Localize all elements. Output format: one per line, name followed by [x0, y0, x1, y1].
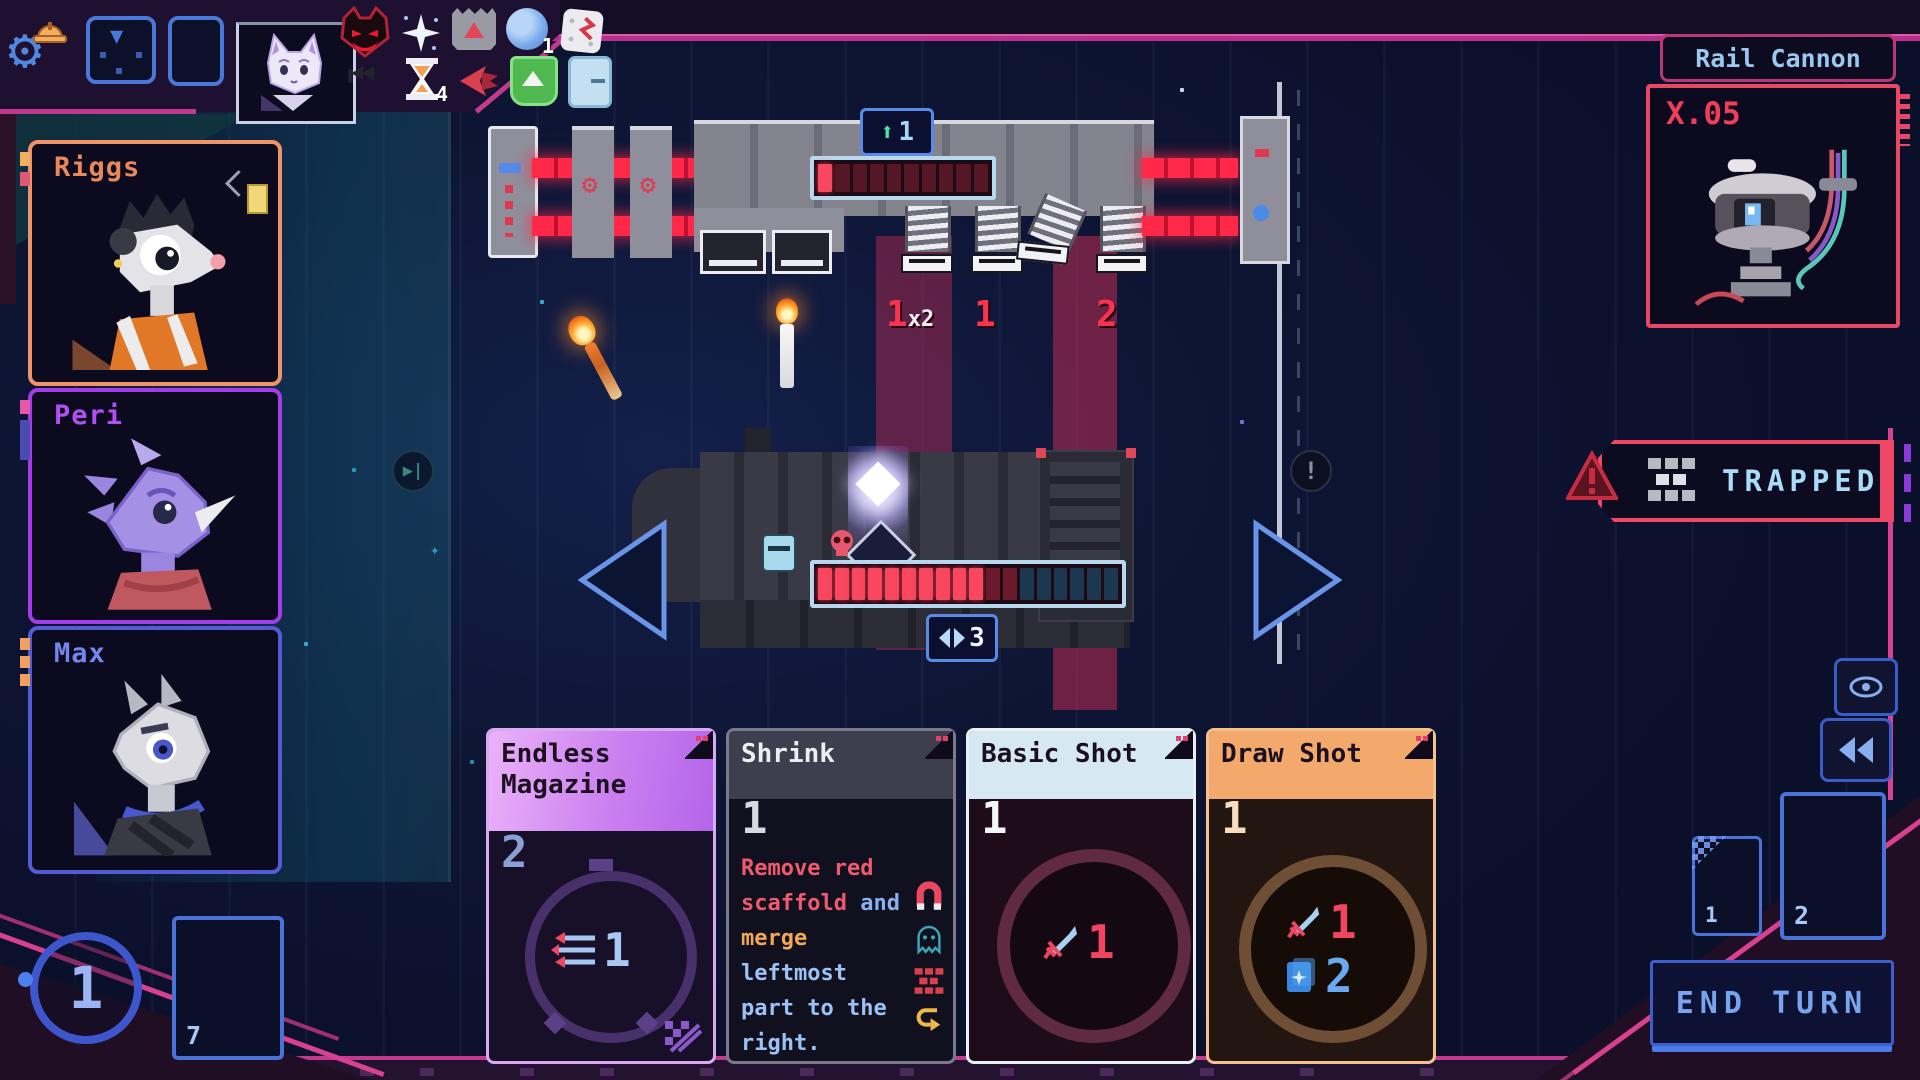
enemy-hp-segment	[956, 164, 970, 192]
trapped-label: TRAPPED	[1722, 464, 1879, 498]
trapped-status-banner: TRAPPED	[1598, 440, 1894, 522]
undo-rewind-button[interactable]	[1820, 718, 1892, 782]
player-hp-segment	[1087, 568, 1101, 600]
player-health-bar	[810, 560, 1126, 608]
player-hp-segment	[986, 568, 1000, 600]
star	[352, 468, 356, 472]
hourglass-status-value: 4	[436, 82, 448, 106]
inspect-title-text: Rail Cannon	[1695, 44, 1861, 73]
sword-icon	[1285, 903, 1323, 941]
shuffle-button[interactable]: ▼	[86, 16, 156, 84]
player-hp-segment	[852, 568, 866, 600]
enemy-vent	[700, 230, 766, 274]
panel-tab	[20, 420, 30, 460]
exhaust-pile-count: 1	[1705, 903, 1718, 927]
scaffold-grid-red-icon	[913, 965, 945, 997]
enemy-hp-segment	[887, 164, 901, 192]
player-hp-segment	[1070, 568, 1084, 600]
queued-card-badge	[247, 184, 268, 214]
end-turn-button[interactable]: END TURN	[1650, 960, 1894, 1046]
game-screen: ✦ ⚙ ⚙ ⬆ 1 1x2 1 2	[0, 0, 1920, 1080]
settings-button[interactable]: ⚙	[8, 16, 72, 82]
player-hp-segment	[902, 568, 916, 600]
card-draw-shot[interactable]: Draw Shot 1 1 2	[1206, 728, 1436, 1064]
preview-eye-button[interactable]	[1834, 658, 1898, 716]
enemy-intent: 1	[974, 294, 996, 335]
magnet-icon	[913, 881, 945, 913]
scaffold-grid-icon	[1648, 458, 1702, 504]
player-hp-segment	[969, 568, 983, 600]
part-corner-mark	[1126, 448, 1136, 458]
player-hp-segment	[835, 568, 849, 600]
player-hp-segment	[868, 568, 882, 600]
card-cost: 1	[741, 797, 768, 841]
star	[304, 642, 308, 646]
enemy-hp-segment	[974, 164, 988, 192]
enemy-hp-segment	[939, 164, 953, 192]
hourglass-status-icon: 4	[400, 56, 446, 102]
ring-notch	[589, 859, 613, 871]
card-cost: 1	[1221, 797, 1248, 841]
enemy-hp-segment	[853, 164, 867, 192]
skip-marker-icon: ▶|	[392, 450, 434, 492]
card-attack: 1	[1285, 895, 1357, 949]
ship-status-icon	[456, 58, 502, 104]
moon-status-icon: 1	[506, 8, 552, 54]
dot	[116, 68, 122, 74]
max-avatar	[74, 670, 242, 856]
card-attack-value: 1	[1087, 915, 1115, 969]
move-right-arrow-button[interactable]	[1248, 518, 1348, 642]
card-attack: 1	[1041, 915, 1115, 969]
crew-name: Max	[54, 638, 106, 669]
disabled-prev-icon: ⏮	[348, 58, 375, 93]
die-status-icon	[562, 10, 608, 56]
card-title: Endless Magazine	[489, 731, 713, 831]
star	[1180, 88, 1184, 92]
enemy-boost-badge: ⬆ 1	[860, 108, 934, 156]
player-hp-segment	[1003, 568, 1017, 600]
player-evade-value: 3	[969, 623, 985, 653]
panel-comb-trim	[1900, 94, 1910, 146]
panel-tab	[20, 674, 30, 686]
card-corner-fold	[685, 731, 713, 759]
enemy-cap-blue-light	[1253, 205, 1269, 221]
frame-dash	[1904, 444, 1911, 462]
sparkle-star: ✦	[430, 540, 440, 559]
enemy-vent	[772, 230, 832, 274]
frame-trim	[0, 109, 196, 114]
enemy-hp-segment	[818, 164, 832, 192]
panel-tab	[20, 172, 30, 186]
inspect-title: Rail Cannon	[1660, 34, 1896, 82]
player-hp-segment	[818, 568, 832, 600]
draw-arrows-icon	[551, 930, 597, 970]
move-left-arrow-button[interactable]	[572, 518, 672, 642]
crew-name: Riggs	[54, 152, 140, 183]
enemy-boost-value: 1	[898, 117, 914, 147]
panel-tab	[20, 152, 30, 166]
enemy-hp-segment	[922, 164, 936, 192]
card-cost: 1	[981, 797, 1008, 841]
star	[540, 300, 544, 304]
enemy-cannon-spring	[1100, 206, 1148, 273]
left-right-arrows-icon	[939, 628, 965, 648]
enemy-ship-right-cap	[1240, 116, 1290, 264]
energy-value: 1	[69, 954, 104, 1022]
end-turn-label: END TURN	[1676, 986, 1869, 1021]
skull-icon	[826, 528, 858, 562]
card-attack-value: 1	[1329, 895, 1357, 949]
enemy-cap-red-mark	[1255, 149, 1269, 157]
inspect-portrait-panel: X.05	[1646, 84, 1900, 328]
shield-boost-status-icon	[510, 56, 556, 102]
enemy-intent: 1x2	[886, 294, 934, 335]
energy-counter: 1	[30, 932, 142, 1044]
exhaust-pile[interactable]: 1	[1692, 836, 1762, 936]
deck-view-button[interactable]	[168, 16, 224, 86]
card-basic-shot[interactable]: Basic Shot 1 1	[966, 728, 1196, 1064]
draw-pile[interactable]: 7	[172, 916, 284, 1060]
enemy-laser-right-top	[1142, 158, 1238, 178]
player-hp-segment	[936, 568, 950, 600]
card-endless-magazine[interactable]: Endless Magazine 2 1	[486, 728, 716, 1064]
door-status-icon	[568, 56, 614, 102]
star	[470, 760, 474, 764]
player-hp-segment	[953, 568, 967, 600]
enemy-hp-segment	[870, 164, 884, 192]
warning-triangle-icon	[1566, 450, 1618, 502]
dot	[100, 52, 106, 58]
moon-status-value: 1	[542, 34, 554, 58]
devil-status-icon	[336, 4, 394, 62]
enemy-cannon-spring	[975, 206, 1023, 273]
crew-name: Peri	[54, 400, 123, 431]
discard-pile[interactable]: 2	[1780, 792, 1886, 940]
card-draw-value: 2	[1325, 949, 1353, 1003]
player-hp-segment	[919, 568, 933, 600]
card-corner-fold	[925, 731, 953, 759]
panel-tab	[20, 400, 30, 414]
riggs-avatar	[72, 184, 242, 370]
panel-tab	[20, 656, 30, 668]
dot	[136, 52, 142, 58]
player-hp-segment	[1054, 568, 1068, 600]
card-value: 1	[603, 923, 631, 977]
enemy-hp-segment	[835, 164, 849, 192]
card-corner-fold	[1165, 731, 1193, 759]
frame-dash	[1904, 474, 1911, 492]
card-cost: 2	[501, 831, 528, 875]
player-hp-segment	[1104, 568, 1118, 600]
enemy-cat-avatar	[239, 25, 347, 115]
infinite-use-icon	[665, 1021, 703, 1053]
player-hp-segment	[1020, 568, 1034, 600]
panel-tab	[20, 638, 30, 650]
enemy-ship-left-cap	[488, 126, 538, 258]
card-draw-icon	[1285, 958, 1317, 994]
player-hp-segment	[1037, 568, 1051, 600]
enemy-cap-red-dots	[505, 185, 513, 237]
up-arrow-icon: ⬆	[880, 118, 894, 146]
crew-panel-riggs[interactable]: Riggs	[28, 140, 282, 386]
ghost-icon	[913, 923, 945, 955]
banner-right-bar	[1880, 444, 1890, 518]
rewind-icon	[1839, 737, 1873, 763]
card-description: Remove red scaffold and merge leftmost p…	[741, 851, 909, 1061]
exhaust-checker-icon	[1692, 836, 1726, 870]
player-evade-badge: 3	[926, 614, 998, 662]
card-title: Basic Shot	[969, 731, 1193, 799]
card-art-value: 1	[551, 923, 631, 977]
player-hp-segment	[885, 568, 899, 600]
warning-hat-icon	[30, 14, 70, 44]
down-arrow-icon: ▼	[110, 24, 123, 49]
rail-cannon-robot-avatar	[1680, 134, 1870, 320]
enemy-turbine-icon: ⚙	[640, 170, 662, 204]
frame-dash	[1904, 504, 1911, 522]
card-title: Draw Shot	[1209, 731, 1433, 799]
part-corner-mark	[1036, 448, 1046, 458]
flare-torch	[563, 311, 629, 404]
enemy-health-bar	[810, 156, 996, 200]
card-title: Shrink	[729, 731, 953, 799]
candle-torch	[776, 298, 798, 388]
discard-pile-count: 2	[1794, 901, 1809, 930]
enemy-intent: 2	[1096, 294, 1118, 335]
enemy-hp-segment	[904, 164, 918, 192]
star	[1240, 420, 1244, 424]
sword-icon	[1041, 922, 1081, 962]
sparkle-status-icon	[398, 10, 444, 56]
card-corner-fold	[1405, 731, 1433, 759]
card-keyword-icons	[911, 881, 947, 1039]
inspect-multiplier: X.05	[1666, 96, 1741, 132]
enemy-cap-light	[499, 163, 521, 173]
cockpit-window	[762, 534, 796, 572]
energy-pip	[18, 972, 33, 987]
merge-arrow-icon	[913, 1007, 945, 1039]
draw-pile-count: 7	[186, 1021, 201, 1050]
card-shrink[interactable]: Shrink 1 Remove red scaffold and merge l…	[726, 728, 956, 1064]
alert-marker-icon: !	[1290, 450, 1332, 492]
frame-corner-maroon	[0, 114, 16, 304]
enemy-turbine-icon: ⚙	[582, 170, 604, 204]
crew-panel-peri[interactable]: Peri	[28, 388, 282, 624]
card-draw: 2	[1285, 949, 1353, 1003]
peri-avatar	[74, 428, 242, 610]
enemy-cannon-spring	[905, 206, 953, 273]
crew-panel-max[interactable]: Max	[28, 626, 282, 874]
eye-icon	[1849, 676, 1883, 698]
damaged-part-status-icon	[452, 8, 498, 54]
enemy-laser-right-bottom	[1142, 216, 1238, 236]
